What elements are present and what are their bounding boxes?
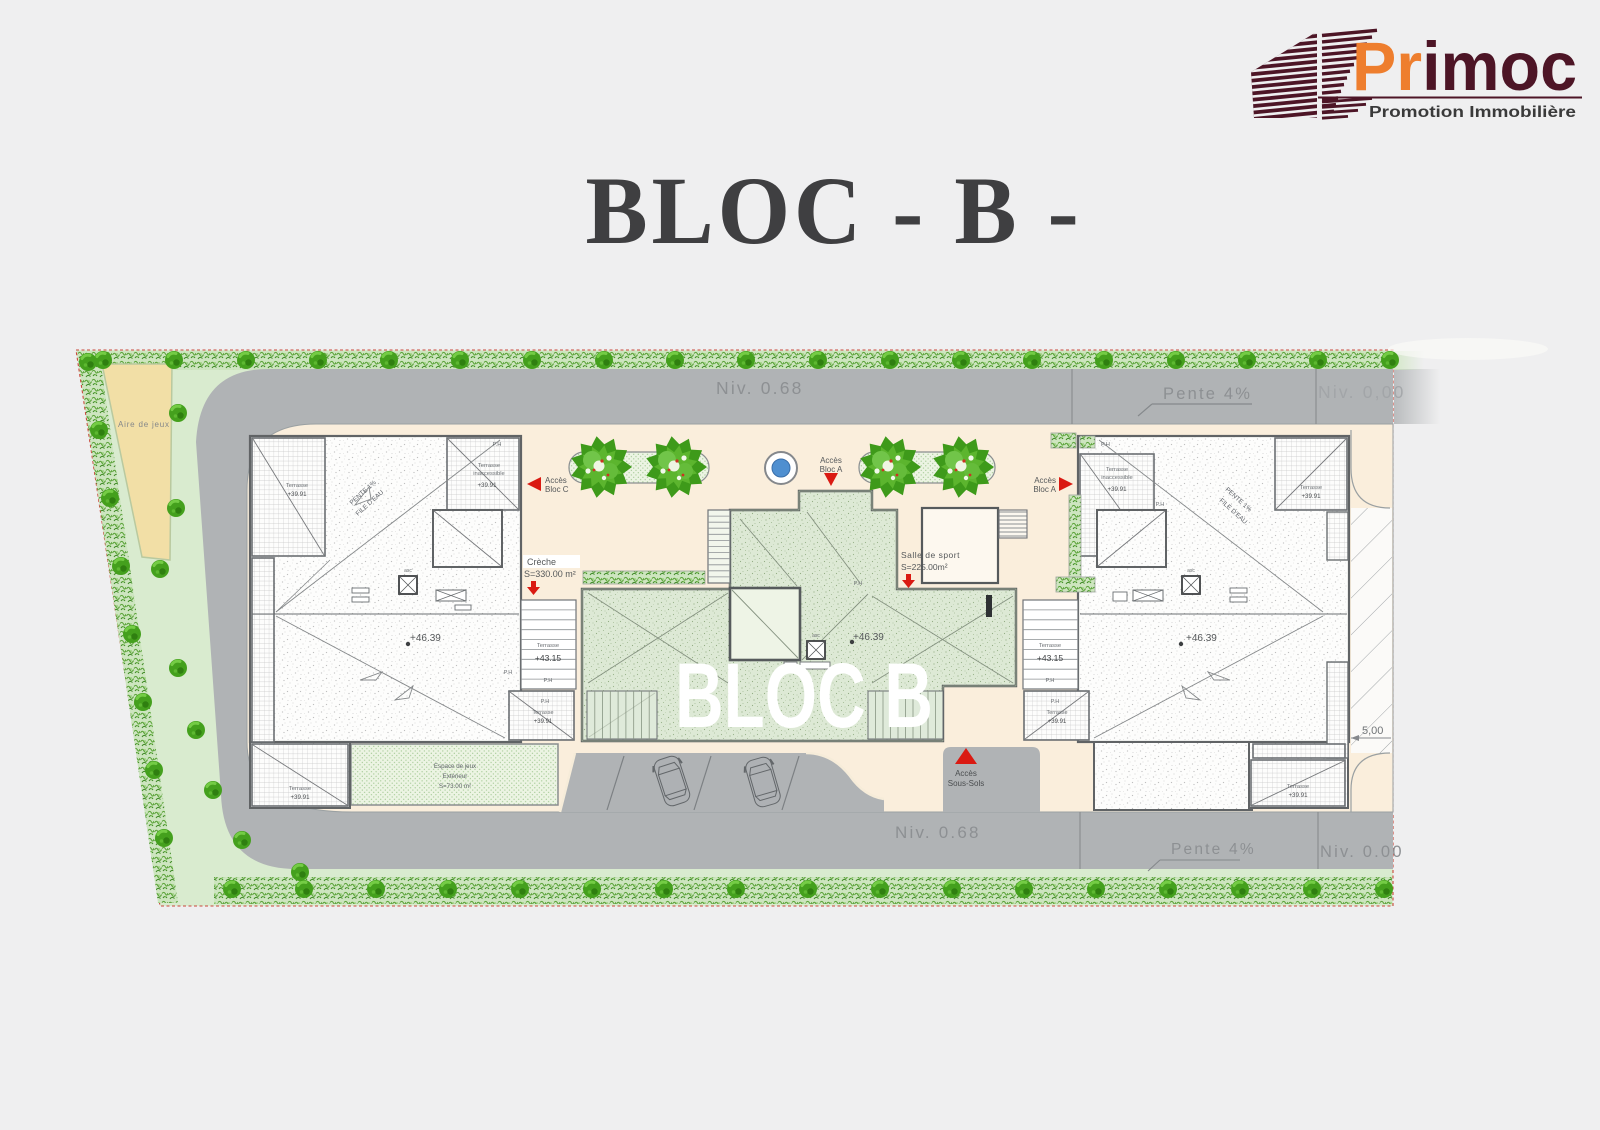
svg-text:Primoc: Primoc — [1352, 28, 1577, 105]
svg-text:P.H: P.H — [544, 678, 553, 684]
svg-text:5,00: 5,00 — [1362, 725, 1383, 737]
svg-text:+43.15: +43.15 — [1037, 653, 1064, 663]
svg-text:Niv. 0.68: Niv. 0.68 — [716, 378, 804, 398]
svg-text:BLOC - B -: BLOC - B - — [586, 157, 1083, 264]
svg-text:Niv. 0,00: Niv. 0,00 — [1318, 382, 1406, 402]
svg-text:P.H: P.H — [541, 699, 549, 705]
svg-text:BLOC B: BLOC B — [675, 645, 933, 747]
svg-text:Terrasse: Terrasse — [532, 710, 553, 716]
svg-text:+39.91: +39.91 — [534, 719, 553, 725]
svg-text:+39.91: +39.91 — [1107, 486, 1127, 493]
svg-text:P.H: P.H — [1046, 678, 1055, 684]
svg-text:P.H: P.H — [1156, 502, 1164, 508]
svg-text:+39.91: +39.91 — [290, 794, 310, 801]
svg-text:Crèche: Crèche — [527, 557, 556, 567]
svg-text:P.H: P.H — [493, 442, 502, 448]
svg-text:Terrasse: Terrasse — [1287, 784, 1309, 790]
svg-text:P.H: P.H — [1101, 442, 1110, 448]
svg-text:Sous-Sols: Sous-Sols — [948, 779, 984, 788]
svg-text:+39.91: +39.91 — [287, 491, 307, 498]
svg-text:Accès: Accès — [820, 456, 842, 465]
svg-text:Extérieur: Extérieur — [443, 773, 468, 780]
svg-text:+43.15: +43.15 — [535, 653, 562, 663]
svg-text:asc: asc — [404, 568, 412, 574]
svg-text:Terrasse: Terrasse — [1039, 643, 1061, 649]
svg-text:Salle de sport: Salle de sport — [901, 550, 960, 560]
svg-text:asc: asc — [812, 633, 820, 639]
svg-text:P.H: P.H — [1051, 699, 1059, 705]
svg-text:Accès: Accès — [955, 769, 977, 778]
svg-text:S=225.00m²: S=225.00m² — [901, 562, 948, 572]
svg-text:Terrasse: Terrasse — [1046, 710, 1067, 716]
svg-text:Terrasse: Terrasse — [289, 786, 311, 792]
svg-text:S=73.00 m²: S=73.00 m² — [439, 783, 471, 790]
svg-text:P.H: P.H — [504, 670, 512, 676]
svg-text:Bloc A: Bloc A — [1033, 485, 1056, 494]
svg-text:+46.39: +46.39 — [410, 633, 441, 644]
svg-text:+39.91: +39.91 — [1301, 493, 1321, 500]
svg-text:Terrasse: Terrasse — [1300, 485, 1322, 491]
svg-text:Terrasse: Terrasse — [478, 463, 500, 469]
svg-text:Pente 4%: Pente 4% — [1163, 385, 1252, 403]
svg-text:S=330.00 m²: S=330.00 m² — [524, 569, 576, 579]
svg-text:Terrasse: Terrasse — [1106, 467, 1128, 473]
svg-text:P.H: P.H — [854, 581, 862, 587]
svg-text:Aire de jeux: Aire de jeux — [118, 420, 170, 429]
svg-text:Pente 4%: Pente 4% — [1171, 841, 1256, 858]
svg-text:inaccessible: inaccessible — [1101, 475, 1133, 481]
svg-text:Niv. 0.68: Niv. 0.68 — [895, 823, 981, 842]
svg-text:Terrasse: Terrasse — [537, 643, 559, 649]
svg-text:+39.91: +39.91 — [1288, 792, 1308, 799]
svg-text:Bloc C: Bloc C — [545, 485, 569, 494]
svg-text:Accès: Accès — [1034, 476, 1056, 485]
svg-text:Terrasse: Terrasse — [286, 483, 308, 489]
svg-text:+46.39: +46.39 — [853, 632, 884, 643]
svg-text:inaccessible: inaccessible — [473, 471, 505, 477]
svg-text:Bloc A: Bloc A — [820, 465, 843, 474]
svg-text:Espace de jeux: Espace de jeux — [434, 763, 477, 770]
svg-text:Niv. 0.00: Niv. 0.00 — [1320, 843, 1404, 861]
svg-text:+46.39: +46.39 — [1186, 633, 1217, 644]
svg-text:+39.91: +39.91 — [1048, 719, 1067, 725]
svg-text:+39.91: +39.91 — [477, 482, 497, 489]
svg-text:asc: asc — [1187, 568, 1195, 574]
svg-text:Promotion Immobilière: Promotion Immobilière — [1369, 104, 1576, 121]
svg-text:Accès: Accès — [545, 476, 567, 485]
